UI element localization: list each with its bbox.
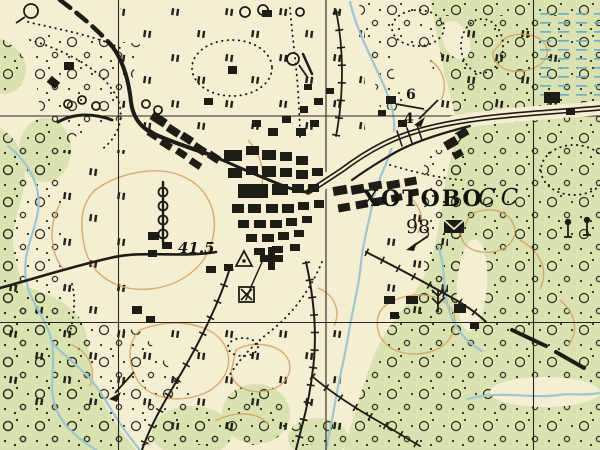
settlement-label: ХОТОВО bbox=[362, 186, 484, 212]
marsh-area bbox=[538, 8, 600, 100]
spot-elevation-label: 41.5 bbox=[178, 239, 215, 257]
topo-map[interactable]: ХОТОВО СС 98 41.5 6 4 bbox=[0, 0, 600, 450]
fraction-denominator: 4 bbox=[404, 111, 414, 127]
settlement-type-label: СС bbox=[478, 185, 523, 211]
point-number-label: 98 bbox=[406, 216, 430, 238]
post-office-icon bbox=[444, 220, 464, 233]
fraction-numerator: 6 bbox=[406, 87, 416, 103]
map-canvas: ХОТОВО СС 98 41.5 6 4 bbox=[0, 0, 600, 450]
